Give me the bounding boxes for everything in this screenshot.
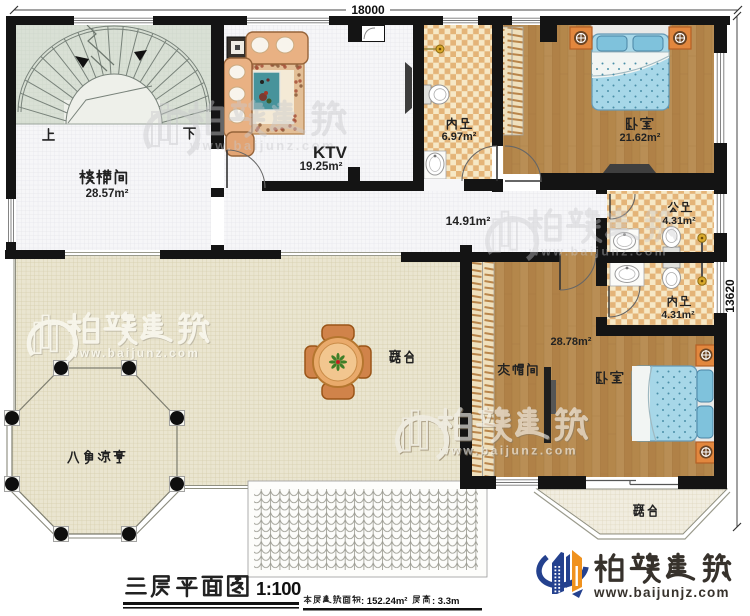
svg-text:18000: 18000 — [351, 3, 385, 17]
svg-text:www.baijunz.com: www.baijunz.com — [528, 244, 668, 258]
svg-text:19.25m²: 19.25m² — [300, 161, 343, 173]
svg-text:4.31m²: 4.31m² — [662, 215, 696, 227]
svg-text:KTV: KTV — [313, 143, 348, 162]
svg-text:21.62m²: 21.62m² — [620, 132, 661, 144]
svg-text:6.97m²: 6.97m² — [442, 131, 477, 143]
svg-text:: 152.24m²: : 152.24m² — [361, 596, 407, 607]
svg-text:1:100: 1:100 — [256, 578, 301, 599]
svg-text:13620: 13620 — [723, 279, 737, 313]
svg-text:www.baijunz.com: www.baijunz.com — [438, 443, 578, 457]
svg-text:: 3.3m: : 3.3m — [432, 596, 459, 607]
svg-text:www.baijunjz.com: www.baijunjz.com — [593, 585, 730, 600]
svg-text:www.baijunz.com: www.baijunz.com — [68, 347, 200, 360]
svg-text:14.91m²: 14.91m² — [446, 214, 491, 228]
svg-text:28.57m²: 28.57m² — [86, 188, 129, 200]
svg-text:28.78m²: 28.78m² — [551, 336, 592, 348]
svg-text:4.31m²: 4.31m² — [661, 309, 695, 321]
